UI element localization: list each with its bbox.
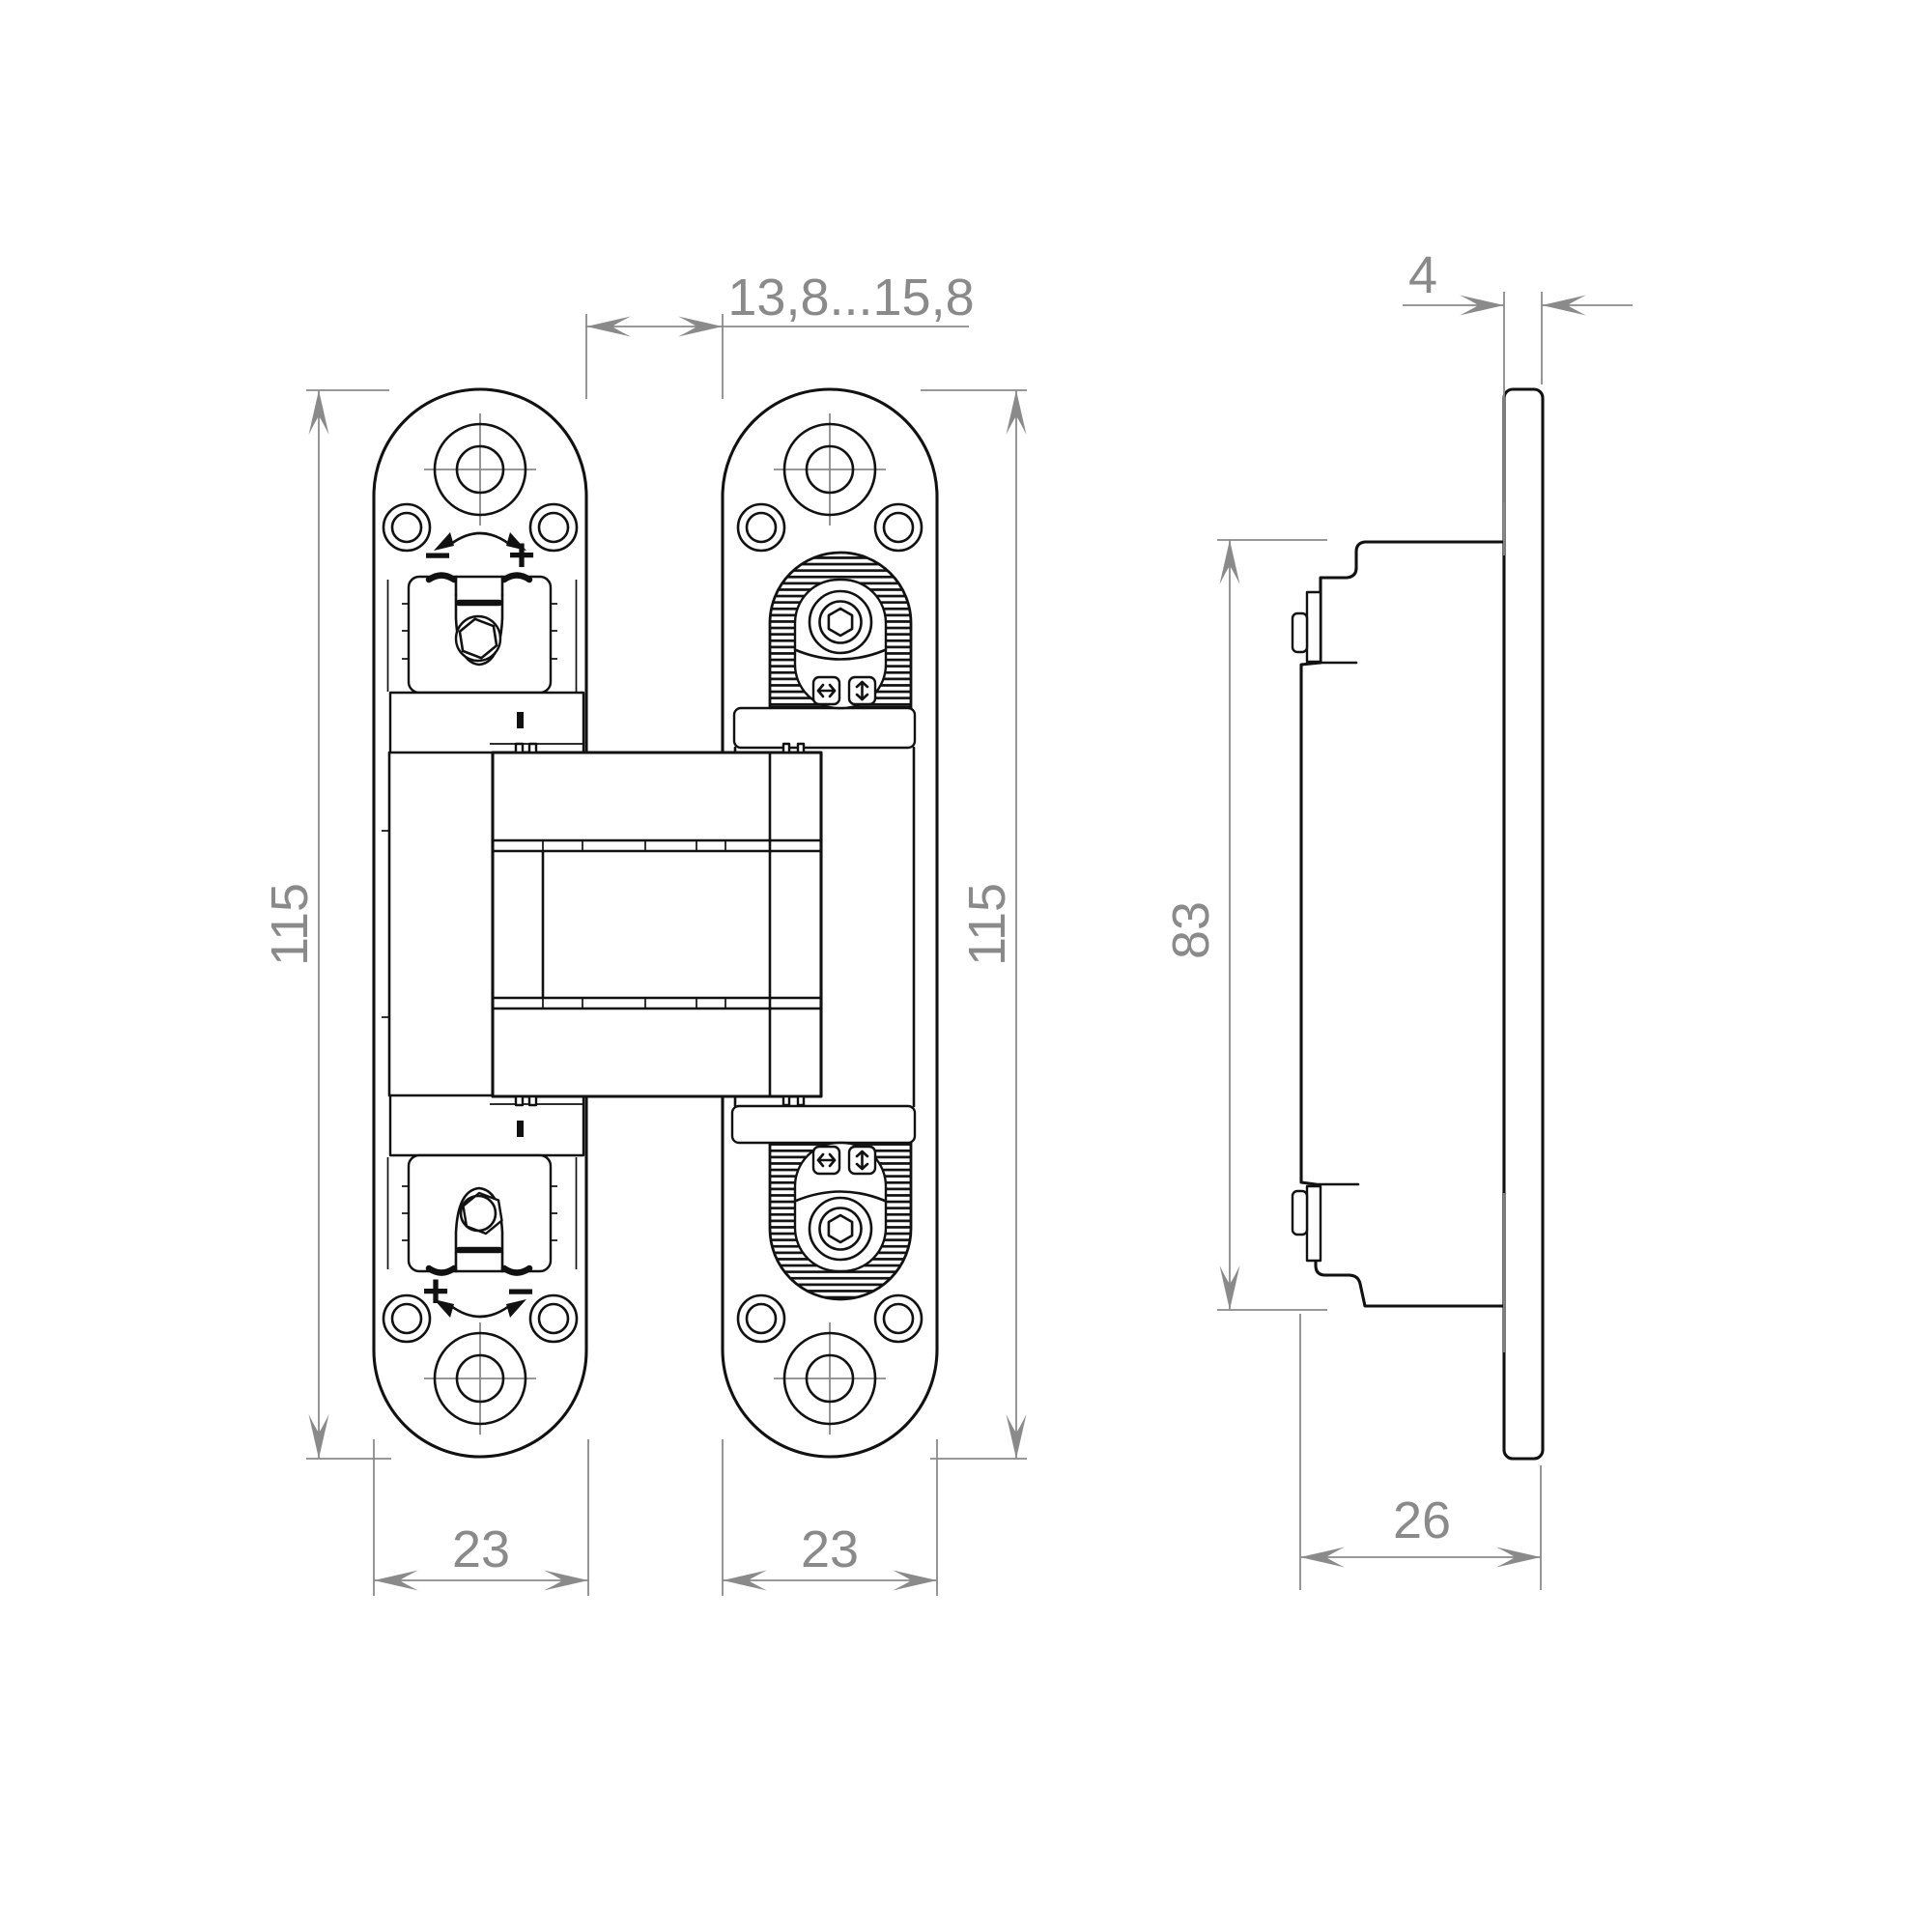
thickness-dim-label: 4	[1408, 246, 1437, 304]
gap-dim-label: 13,8...15,8	[727, 269, 974, 327]
body-height-dim-label: 83	[1162, 901, 1220, 959]
dim-width-right: 23	[723, 1439, 937, 1596]
right-height-dim-label: 115	[958, 883, 1016, 966]
plus-symbol: +	[422, 1266, 449, 1318]
minus-symbol: −	[507, 1266, 534, 1318]
pedestal	[734, 708, 915, 748]
left-height-dim-label: 115	[261, 883, 319, 966]
side-plate-profile	[1504, 389, 1543, 1459]
hinge-technical-drawing: − +	[0, 0, 1932, 1932]
dim-gap: 13,8...15,8	[586, 269, 975, 399]
pedestal	[732, 1106, 915, 1143]
dim-height-left: 115	[261, 390, 391, 1459]
left-width-dim-label: 23	[452, 1520, 510, 1578]
clamp-bolt	[456, 616, 500, 661]
right-width-dim-label: 23	[801, 1520, 859, 1578]
depth-dim-label: 26	[1393, 1492, 1451, 1549]
side-body-silhouette	[1301, 542, 1504, 1306]
drawing-page: − +	[0, 0, 1932, 1932]
central-pivot-link	[493, 744, 821, 1105]
top-clamp-bracket	[388, 576, 577, 694]
front-view: − +	[374, 389, 937, 1457]
bottom-clamp-bracket	[388, 1155, 577, 1273]
dim-width-left: 23	[374, 1439, 588, 1596]
side-view	[1293, 389, 1543, 1459]
